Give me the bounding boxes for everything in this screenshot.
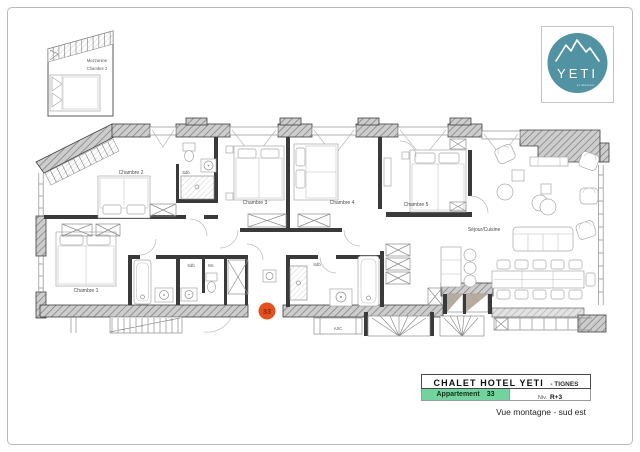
round-table-icon [540, 199, 556, 215]
level-value: R+3 [550, 394, 562, 401]
sdb-wc-fixtures [181, 270, 276, 301]
sofa-icon [513, 227, 573, 251]
side-table-icon [512, 170, 524, 181]
mezzanine-bed-icon [50, 75, 100, 111]
inset-label-line1: Mezzanine [87, 58, 108, 63]
yeti-logo: YETI et alentour [541, 26, 614, 103]
chambre4-bed-icon [294, 144, 338, 200]
chambre2-bed-icon [98, 176, 150, 218]
room-label-chambre5: Chambre 5 [404, 202, 429, 208]
room-label-sejour-cuisine: Séjour/Cuisine [468, 227, 501, 233]
hotel-name: CHALET HOTEL YETI [434, 378, 544, 388]
toilet-icon [206, 273, 217, 281]
lower-right-windows [494, 318, 592, 330]
room-label-chambre2: Chambre 2 [119, 170, 144, 176]
toilet-icon [183, 143, 195, 151]
marker-number: 33 [263, 307, 271, 316]
view-caption: Vue montagne - sud est [421, 407, 591, 417]
apartment-number-marker: 33 [259, 303, 276, 320]
room-label-chambre4: Chambre 4 [330, 200, 355, 206]
title-block: CHALET HOTEL YETI - TIGNES Appartement33… [421, 374, 591, 417]
bottom-wall-right [283, 305, 443, 317]
shower-icon [290, 266, 307, 300]
room-label-sdb-small: Sdb [187, 263, 195, 268]
level-label: Niv. [538, 395, 547, 401]
floor-plan-page: Mezzanine Chambre 2 [0, 0, 640, 452]
logo-tagline: et alentour [577, 83, 595, 87]
mezzanine-inset: Mezzanine Chambre 2 [48, 31, 113, 116]
logo-name: YETI [557, 66, 598, 81]
room-label-wc: Wc [208, 263, 214, 268]
chambre1-bed-icon [56, 232, 116, 286]
room-label-sdb-mid: Sdb [313, 262, 321, 267]
side-table-icon [541, 184, 551, 194]
location-suffix: - TIGNES [550, 381, 578, 388]
yeti-logo-graphic: YETI et alentour [543, 28, 612, 101]
room-label-asc: ASC [334, 326, 343, 331]
info-row: Appartement33 Niv.R+3 [421, 389, 591, 401]
round-table-icon [497, 184, 513, 200]
room-label-sdb-top: Sdb [182, 170, 190, 175]
window-bays [443, 294, 492, 314]
middle-bathroom-fixtures [290, 256, 379, 306]
apartment-cell: Appartement33 [422, 389, 509, 400]
apartment-label: Appartement [437, 391, 480, 398]
room-label-chambre1: Chambre 1 [74, 288, 99, 294]
chambre1-bath-fixtures [134, 260, 173, 304]
title-row: CHALET HOTEL YETI - TIGNES [421, 374, 591, 389]
right-wall-windows [599, 165, 604, 305]
common-corridor-elements [71, 316, 484, 336]
shower-icon [181, 176, 214, 199]
bottom-wall-left [40, 305, 248, 317]
room-label-chambre3: Chambre 3 [243, 200, 268, 206]
kitchen-icon [441, 247, 476, 287]
inset-label-line2: Chambre 2 [87, 66, 108, 71]
dining-table-icon [492, 260, 595, 299]
sideboard-icon [530, 157, 568, 166]
level-cell: Niv.R+3 [509, 389, 590, 400]
dresser-icon [384, 158, 391, 186]
chambre3-bed-icon [226, 146, 284, 200]
apartment-number: 33 [487, 391, 495, 398]
